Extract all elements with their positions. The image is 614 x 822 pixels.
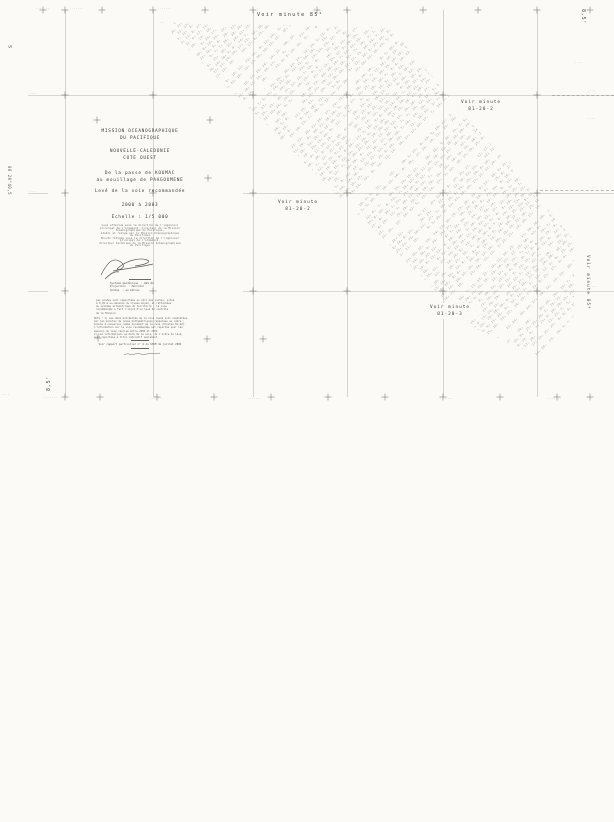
divider-rule-1 (129, 279, 151, 280)
divider-rule-3 (131, 348, 149, 349)
illegible-tick-label: ······· (70, 7, 84, 10)
graticule-cross-icon (420, 7, 427, 14)
graticule-cross-icon (94, 117, 101, 124)
see-minute-ne-line1: Voir minute (452, 99, 510, 106)
illegible-tick-label: ···· (2, 393, 10, 396)
see-minute-ne-line2: 81-20-2 (452, 106, 510, 113)
datum-row: Sondes: en mètres (110, 289, 200, 292)
graticule-cross-icon (344, 7, 351, 14)
top-right-graticule-label: 8,5' (580, 9, 586, 24)
graticule-cross-icon (97, 394, 104, 401)
graticule-cross-icon (475, 7, 482, 14)
datum-label: Sondes (110, 289, 119, 292)
illegible-tick-label: ······· (150, 397, 164, 400)
region-line2: COTE OUEST (60, 155, 220, 162)
margin-dashed-line (552, 95, 614, 96)
grid-horizontal-line (28, 291, 48, 292)
divider-rule-2 (131, 340, 149, 341)
graticule-cross-icon (587, 7, 594, 14)
fine-print: Levé effectué sous la direction de l'ing… (60, 225, 220, 248)
graticule-cross-icon (62, 7, 69, 14)
bottom-left-graticule-label: 8,5' (46, 376, 52, 391)
handwritten-annotation (122, 350, 162, 358)
illegible-tick-label: ······· (548, 397, 562, 400)
illegible-tick-label: ···· (30, 190, 38, 193)
geodetic-datum-table: Système géodésique: WGS 84 Projection: M… (110, 282, 200, 292)
mission-title-line2: DU PACIFIQUE (60, 135, 220, 142)
region-line1: NOUVELLE-CALEDONIE (60, 148, 220, 155)
see-minute-center: Voir minute 81-20-2 (267, 198, 329, 214)
area-line2: au mouillage de PAAGOUMENE (60, 177, 220, 184)
margin-dashed-line (540, 190, 614, 191)
illegible-tick-label: ···· (590, 186, 598, 189)
graticule-cross-icon (207, 117, 214, 124)
see-minute-ne: Voir minute 81-20-2 (450, 98, 512, 114)
left-hemisphere-letter: S (9, 44, 14, 48)
graticule-cross-icon (344, 288, 351, 295)
graticule-cross-icon (534, 7, 541, 14)
illegible-tick-label: ······· (44, 396, 58, 399)
illegible-tick-label: ······· (158, 7, 172, 10)
notes-paragraph: Les sondes sont rapportées au zéro des c… (96, 299, 236, 315)
graticule-cross-icon (62, 288, 69, 295)
right-minute-reference: Voir minute 85⁴ (585, 255, 590, 310)
graticule-cross-icon (150, 92, 157, 99)
see-minute-center-line1: Voir minute (269, 199, 327, 206)
nota-paragraph: Nota : 1) Les deux extrémités de la voie… (94, 317, 239, 339)
illegible-tick-label: ······· (440, 397, 454, 400)
top-minute-reference: Voir minute 85⁴ (257, 12, 323, 18)
illegible-tick-label: ···· (590, 285, 598, 288)
survey-scale: Échelle : 1/5 000 (60, 214, 220, 221)
illegible-tick-label: ···· (588, 117, 596, 120)
see-minute-se-line2: 81-20-3 (421, 311, 479, 318)
graticule-cross-icon (325, 394, 332, 401)
graticule-cross-icon (587, 394, 594, 401)
graticule-cross-icon (202, 7, 209, 14)
graticule-cross-icon (250, 288, 257, 295)
illegible-tick-label: ······· (248, 397, 262, 400)
survey-years: 2000 à 2003 (60, 202, 220, 209)
see-minute-se: Voir minute 81-20-3 (419, 303, 481, 319)
graticule-cross-icon (268, 394, 275, 401)
see-minute-se-line1: Voir minute (421, 304, 479, 311)
illegible-tick-label: ······· (36, 7, 50, 10)
soundings-texture: 11₁ 20₄ 11₆ 22₆ 15₂ 7₀ 17₂ 19₆ 28₂ 20₁ 1… (0, 0, 614, 822)
illegible-tick-label: ···· (588, 89, 596, 92)
survey-minute-sheet: { "palette": {"bg":"#fbfaf6","ink":"#3f3… (0, 0, 614, 411)
area-line1: De la passe de KOUMAC (60, 170, 220, 177)
illegible-tick-label: ···· (575, 61, 583, 64)
graticule-cross-icon (497, 394, 504, 401)
graticule-cross-icon (260, 336, 267, 343)
see-minute-center-line2: 81-20-2 (269, 206, 327, 213)
datum-value: : en mètres (122, 289, 139, 292)
survey-subject: Levé de la voie recommandée (60, 188, 220, 195)
mission-title-line1: MISSION OCEANOGRAPHIQUE (60, 128, 220, 135)
graticule-cross-icon (62, 92, 69, 99)
left-latitude-label: 00 20°40,5 (7, 166, 12, 195)
report-reference: Voir rapport particulier n° 4 du SHOM de… (60, 343, 220, 346)
graticule-cross-icon (534, 92, 541, 99)
graticule-cross-icon (250, 7, 257, 14)
graticule-cross-icon (211, 394, 218, 401)
grid-horizontal-line (28, 193, 48, 194)
graticule-cross-icon (99, 7, 106, 14)
graticule-cross-icon (62, 394, 69, 401)
graticule-cross-icon (150, 7, 157, 14)
graticule-cross-icon (250, 190, 257, 197)
illegible-tick-label: ···· (30, 92, 38, 95)
graticule-cross-icon (382, 394, 389, 401)
